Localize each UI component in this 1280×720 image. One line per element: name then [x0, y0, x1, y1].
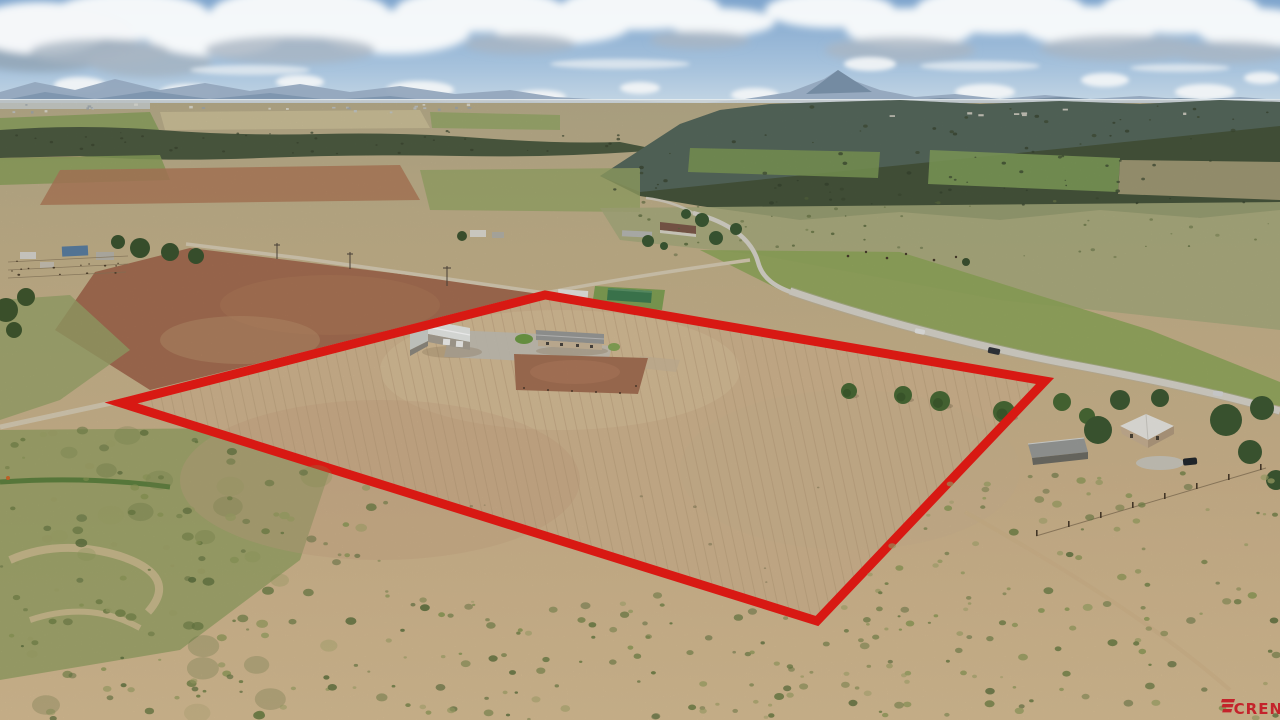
grain-overlay	[0, 100, 1280, 720]
aerial-property-photo: CREN	[0, 0, 1280, 720]
cren-text: CREN	[1234, 700, 1280, 718]
